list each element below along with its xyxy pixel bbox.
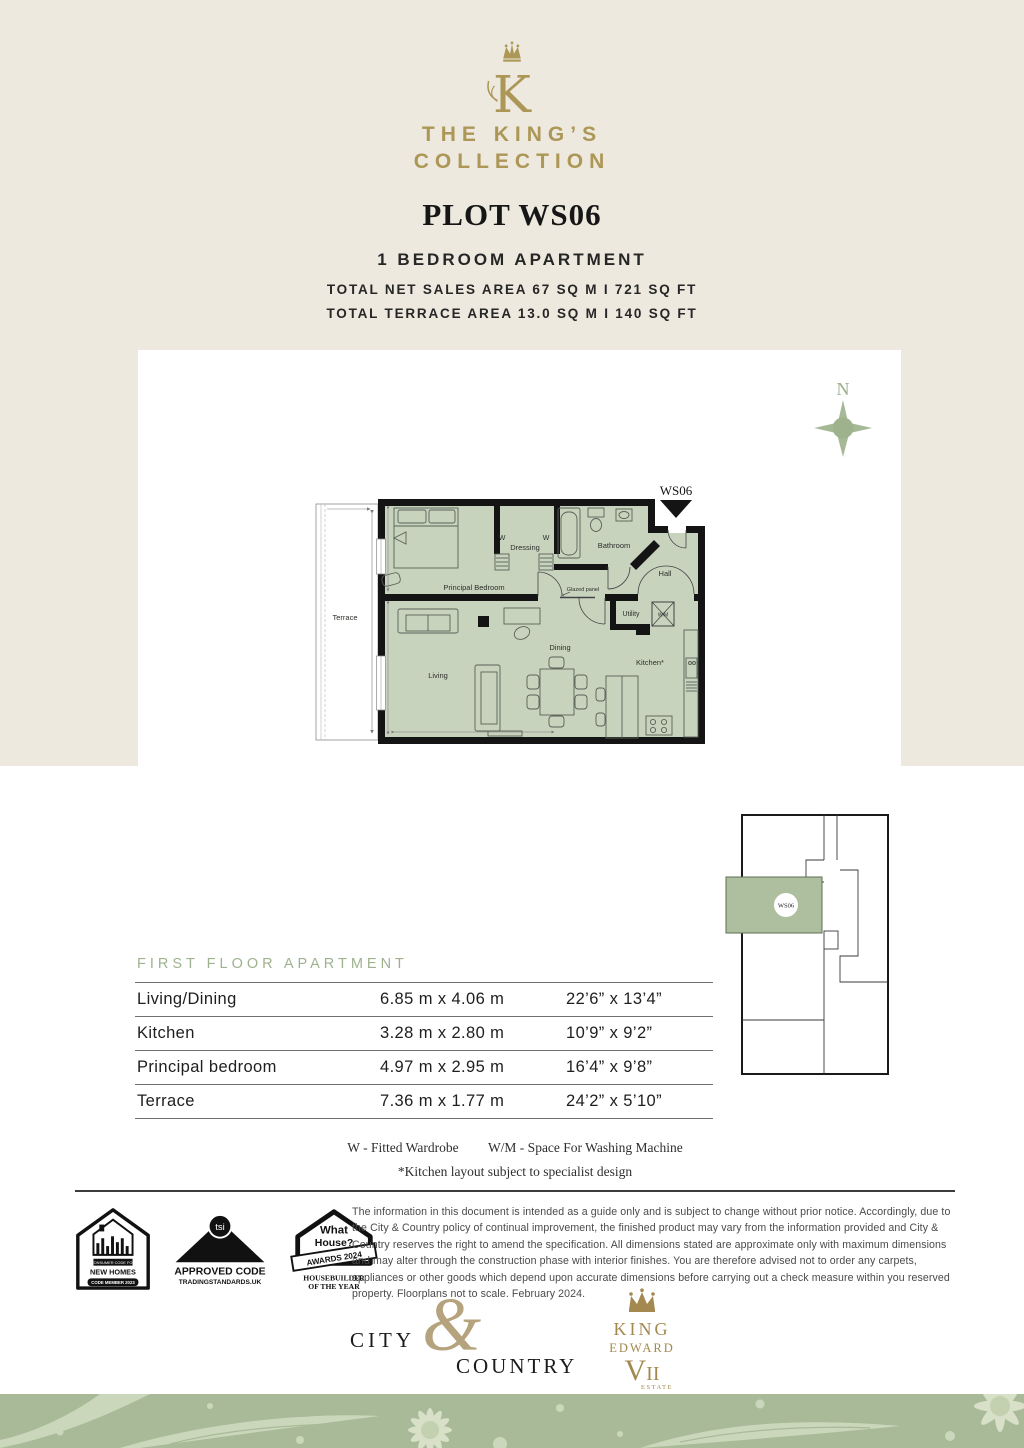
imperial-size: 10’9” x 9’2” [566, 1024, 713, 1043]
tsi-approved-code-badge-icon: tsi APPROVED CODE TRADINGSTANDARDS.UK [168, 1206, 272, 1292]
legend-washing-machine: W/M - Space For Washing Machine [488, 1140, 683, 1155]
net-sales-area: TOTAL NET SALES AREA 67 SQ M I 721 SQ FT [0, 282, 1024, 297]
label-glazed-panel: Glazed panel [567, 587, 599, 593]
tsi-circle-text: tsi [215, 1222, 224, 1233]
floorplan-page: K THE KING’S COLLECTION PLOT WS06 1 BEDR… [0, 0, 1024, 1448]
label-wardrobe-left: W [499, 535, 506, 542]
floral-border-decoration [0, 1394, 1024, 1448]
kitchen-note: *Kitchen layout subject to specialist de… [75, 1164, 955, 1180]
monogram-letter: K [493, 65, 532, 120]
label-utility: Utility [622, 611, 640, 618]
divider-rule [75, 1190, 955, 1192]
label-hall: Hall [659, 569, 672, 578]
brand-name-line1: THE KING’S [0, 122, 1024, 148]
left-margin-band [0, 350, 138, 766]
brand-name-line2: COLLECTION [0, 149, 1024, 175]
entrance-arrow-icon [660, 500, 692, 518]
plot-label: WS06 [660, 483, 693, 498]
right-margin-band [901, 350, 1024, 766]
label-washing-machine: W/M [658, 613, 668, 619]
legend: W - Fitted Wardrobe W/M - Space For Wash… [75, 1140, 955, 1180]
page-title: PLOT WS06 [0, 197, 1024, 233]
brand-logo: K [0, 40, 1024, 125]
table-row: Principal bedroom 4.97 m x 2.95 m 16’4” … [135, 1050, 713, 1084]
imperial-size: 16’4” x 9’8” [566, 1058, 713, 1077]
metric-size: 4.97 m x 2.95 m [380, 1058, 566, 1077]
entrance-marker: WS06 [660, 483, 693, 518]
apartment-floor [381, 506, 698, 737]
label-terrace: Terrace [332, 613, 357, 622]
compass-n-label: N [837, 379, 850, 399]
compass-north-icon: N [810, 362, 876, 462]
wh-what-text: What [320, 1225, 348, 1237]
city-country-logo: CITY & COUNTRY [350, 1298, 590, 1393]
tsi-ts-text: TRADINGSTANDARDS.UK [179, 1279, 262, 1286]
label-principal-bedroom: Principal Bedroom [443, 583, 504, 592]
apartment-type: 1 BEDROOM APARTMENT [0, 250, 1024, 270]
label-dressing: Dressing [510, 543, 540, 552]
imperial-size: 24’2” x 5’10” [566, 1092, 713, 1111]
terrace-area: TOTAL TERRACE AREA 13.0 SQ M I 140 SQ FT [0, 306, 1024, 321]
legend-line: W - Fitted Wardrobe W/M - Space For Wash… [75, 1140, 955, 1156]
table-row: Kitchen 3.28 m x 2.80 m 10’9” x 9’2” [135, 1016, 713, 1050]
unit-badge-label: WS06 [778, 903, 795, 910]
metric-size: 7.36 m x 1.77 m [380, 1092, 566, 1111]
floorplan-drawing: WS06 Terrace Principal Bedroom W W Dress… [298, 482, 718, 757]
cc-city-text: CITY [350, 1328, 415, 1353]
room-name: Living/Dining [137, 990, 380, 1009]
label-wardrobe-right: W [543, 535, 550, 542]
new-homes-code-badge-icon: CONSUMER CODE FOR NEW HOMES CODE MEMBER … [70, 1206, 156, 1292]
room-name: Terrace [137, 1092, 380, 1111]
table-row: Terrace 7.36 m x 1.77 m 24’2” x 5’10” [135, 1084, 713, 1119]
building-locator-map: WS06 [720, 810, 900, 1086]
king-edward-estate-logo: KING EDWARD VII ESTATE [592, 1288, 692, 1391]
label-living: Living [428, 671, 448, 680]
table-row: Living/Dining 6.85 m x 4.06 m 22’6” x 13… [135, 982, 713, 1016]
room-name: Kitchen [137, 1024, 380, 1043]
cc-country-text: COUNTRY [456, 1354, 577, 1379]
crown-icon [623, 1288, 661, 1312]
metric-size: 3.28 m x 2.80 m [380, 1024, 566, 1043]
ke-king-text: KING [592, 1319, 692, 1340]
legend-wardrobe: W - Fitted Wardrobe [347, 1140, 458, 1155]
badge-top-text: CONSUMER CODE FOR [91, 1260, 136, 1265]
metric-size: 6.85 m x 4.06 m [380, 990, 566, 1009]
dimensions-table: FIRST FLOOR APARTMENT Living/Dining 6.85… [135, 956, 713, 1119]
terrace-area-drawing [316, 504, 378, 740]
badge-member-text: CODE MEMBER 2023 [91, 1280, 135, 1285]
accreditation-badges: CONSUMER CODE FOR NEW HOMES CODE MEMBER … [70, 1206, 384, 1292]
room-name: Principal bedroom [137, 1058, 380, 1077]
badge-name-text: NEW HOMES [90, 1267, 136, 1276]
label-dining: Dining [549, 643, 570, 652]
label-bathroom: Bathroom [598, 541, 631, 550]
kings-collection-monogram-icon: K [447, 40, 577, 120]
label-kitchen: Kitchen* [636, 658, 664, 667]
table-heading: FIRST FLOOR APARTMENT [137, 956, 713, 972]
tsi-approved-text: APPROVED CODE [174, 1267, 265, 1278]
ke-vii-text: VII [592, 1357, 692, 1384]
imperial-size: 22’6” x 13’4” [566, 990, 713, 1009]
